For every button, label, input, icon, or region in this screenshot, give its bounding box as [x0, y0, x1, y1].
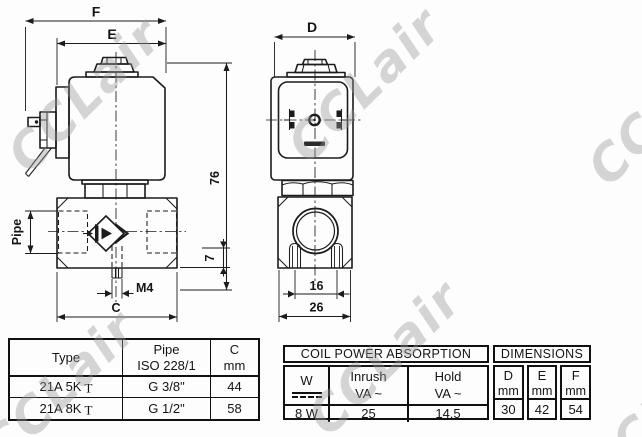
coil-power-title: COIL POWER ABSORPTION [283, 345, 489, 363]
solenoid-valve-datasheet-page: F E 76 Pipe 7 M4 [0, 0, 642, 437]
c-cell-row2: 58 [211, 398, 258, 419]
dim-label-pipe: Pipe [10, 219, 24, 245]
type-cell-row1: 21A 5KT [10, 377, 123, 398]
hold-label: Hold [435, 369, 462, 385]
dim-f-value: 54 [562, 400, 589, 418]
dimensions-title-label: DIMENSIONS [501, 347, 583, 361]
valve-logo-symbol [83, 216, 128, 251]
hold-header-cell: Hold VA ~ [409, 367, 487, 404]
dim-d-unit: mm [495, 384, 522, 400]
type-value: 21A 8KT [40, 401, 93, 416]
dim-label-C: C [111, 301, 120, 315]
w-value: 8 W [295, 406, 318, 422]
c-cell-row1: 44 [211, 377, 258, 398]
dimensions-table: DIMENSIONS D mm 30 E mm 42 F mm 54 [493, 345, 591, 420]
inrush-value-cell: 25 [330, 404, 409, 422]
inrush-unit: VA ~ [355, 386, 382, 402]
spec-tables: COIL POWER ABSORPTION W Inrush VA ~ Hold… [283, 345, 591, 420]
dim-f-unit: mm [562, 384, 589, 400]
dim-f-label: F [562, 367, 589, 384]
hold-value: 14,5 [435, 406, 460, 422]
inrush-header-cell: Inrush VA ~ [330, 367, 409, 404]
inrush-label: Inrush [350, 369, 386, 385]
dim-label-F: F [92, 4, 101, 20]
dimensions-title: DIMENSIONS [493, 345, 591, 363]
dim-col-f: F mm 54 [560, 365, 591, 420]
type-table-header-pipe: Pipe ISO 228/1 [123, 340, 211, 377]
dim-label-7: 7 [203, 254, 217, 261]
dim-e-unit: mm [529, 384, 556, 400]
dim-col-e: E mm 42 [527, 365, 558, 420]
pipe-value: G 1/2" [148, 401, 184, 416]
dimensions-body: D mm 30 E mm 42 F mm 54 [493, 365, 591, 420]
type-table-header-type: Type [10, 340, 123, 377]
type-header-label: Type [52, 350, 80, 365]
c-header-line1: C [230, 342, 239, 357]
w-header-cell: W [285, 367, 330, 404]
dim-e-label: E [529, 367, 556, 384]
type-table: Type Pipe ISO 228/1 C mm 21A 5KT G 3/8" … [8, 338, 260, 421]
coil-power-title-label: COIL POWER ABSORPTION [301, 347, 471, 361]
dc-symbol-solid-line [292, 392, 322, 394]
dim-label-D: D [307, 19, 317, 35]
type-cell-row2: 21A 8KT [10, 398, 123, 419]
w-label: W [300, 373, 312, 389]
hold-value-cell: 14,5 [409, 404, 487, 422]
dim-d-label: D [495, 367, 522, 384]
dim-label-16: 16 [310, 279, 324, 293]
connector-terminals [284, 109, 348, 130]
dc-symbol-dashed-line [292, 396, 322, 398]
coil-power-body: W Inrush VA ~ Hold VA ~ 8 W 25 [283, 365, 489, 420]
dim-e-value: 42 [529, 400, 556, 418]
pipe-cell-row2: G 1/2" [123, 398, 211, 419]
pipe-cell-row1: G 3/8" [123, 377, 211, 398]
coil-power-table: COIL POWER ABSORPTION W Inrush VA ~ Hold… [283, 345, 489, 420]
c-value: 58 [227, 401, 241, 416]
dim-d-value: 30 [495, 400, 522, 418]
dim-label-76: 76 [208, 171, 222, 185]
dim-label-M4: M4 [136, 281, 153, 295]
pipe-header-line2: ISO 228/1 [137, 358, 196, 373]
dim-label-E: E [107, 26, 116, 42]
w-value-cell: 8 W [285, 404, 330, 422]
type-value: 21A 5KT [40, 379, 93, 394]
c-value: 44 [227, 379, 241, 394]
pipe-value: G 3/8" [148, 379, 184, 394]
front-view: D 16 26 [266, 19, 362, 322]
pipe-header-line1: Pipe [153, 342, 179, 357]
dim-col-d: D mm 30 [493, 365, 524, 420]
side-view: F E 76 Pipe 7 M4 [10, 4, 232, 323]
inrush-value: 25 [361, 406, 375, 422]
dim-label-26: 26 [310, 301, 324, 315]
c-header-line2: mm [224, 358, 246, 373]
type-table-header-c: C mm [211, 340, 258, 377]
hold-unit: VA ~ [435, 386, 462, 402]
